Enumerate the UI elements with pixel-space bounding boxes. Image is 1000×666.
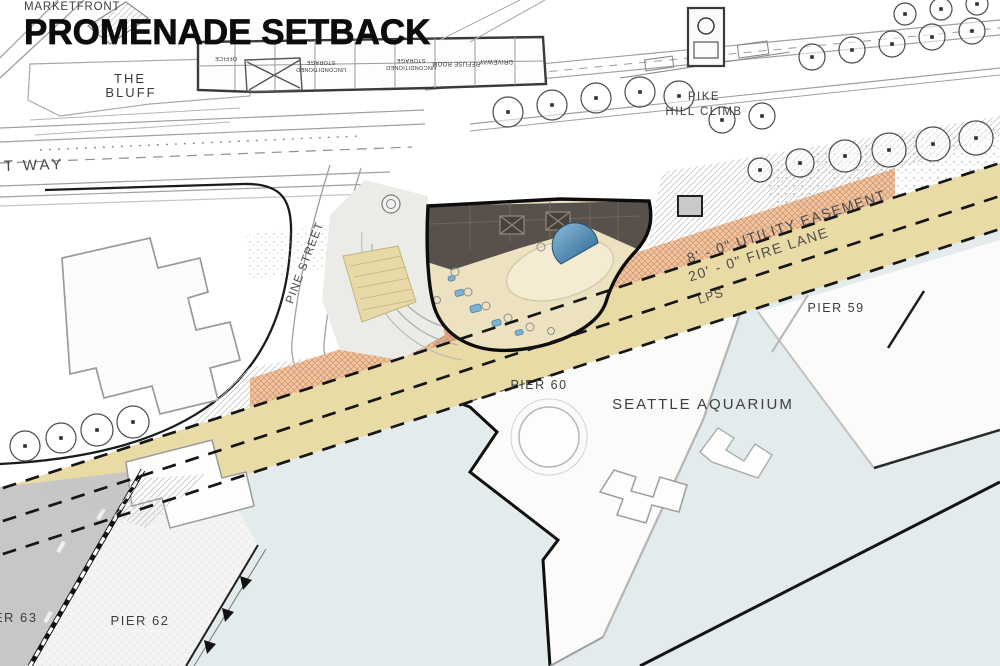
label-the-bluff-2: BLUFF [105,85,156,100]
tree-trunk-mark [931,142,935,146]
label-pike: PIKE [688,91,720,103]
label-t-way: T WAY [4,156,65,175]
tree-trunk-mark [758,168,762,172]
tree-trunk-mark [850,48,854,52]
tree-trunk-mark [638,90,642,94]
label-the-bluff-1: THE [114,71,146,86]
utility-vault [678,196,702,216]
label-storage-1b: UNCONDITIONED [296,66,346,72]
tree-trunk-mark [975,2,979,6]
tree-trunk-mark [930,35,934,39]
tree-trunk-mark [59,436,63,440]
label-storage-2a: STORAGE [397,57,426,63]
elevator-block [688,8,724,66]
label-pier-60: PIER 60 [510,378,567,392]
tree-trunk-mark [760,114,764,118]
label-hill-climb: HILL CLIMB [665,106,742,118]
tree-trunk-mark [720,118,724,122]
bluff-building-footprint [62,238,240,414]
tree-trunk-mark [939,7,943,11]
site-plan-canvas: THEBLUFFT WAYPINE STREETOFFICESTORAGEUNC… [0,0,1000,666]
tree-trunk-mark [550,103,554,107]
tree-trunk-mark [970,29,974,33]
tree-trunk-mark [594,96,598,100]
promenade-setback-plan: THEBLUFFT WAYPINE STREETOFFICESTORAGEUNC… [0,0,1000,666]
label-refuse-room: REFUSE ROOM [432,60,480,66]
tree-trunk-mark [903,12,907,16]
tree-trunk-mark [23,444,27,448]
label-driveway: DRIVEWAY [479,58,513,64]
label-seattle-aquarium: SEATTLE AQUARIUM [612,396,794,413]
label-pier-59: PIER 59 [807,301,864,315]
tree-trunk-mark [887,148,891,152]
label-storage-1a: STORAGE [307,59,336,65]
label-pier-63: PIER 63 [0,610,37,625]
tree-trunk-mark [798,161,802,165]
tree-trunk-mark [810,55,814,59]
tree-trunk-mark [131,420,135,424]
label-storage-2b: UNCONDITIONED [386,64,436,70]
tree-trunk-mark [506,110,510,114]
tree-trunk-mark [890,42,894,46]
tree-trunk-mark [974,136,978,140]
tree-trunk-mark [843,154,847,158]
tree-trunk-mark [677,94,681,98]
label-office: OFFICE [215,55,238,61]
tree-trunk-mark [95,428,99,432]
label-pier-62: PIER 62 [111,613,170,628]
